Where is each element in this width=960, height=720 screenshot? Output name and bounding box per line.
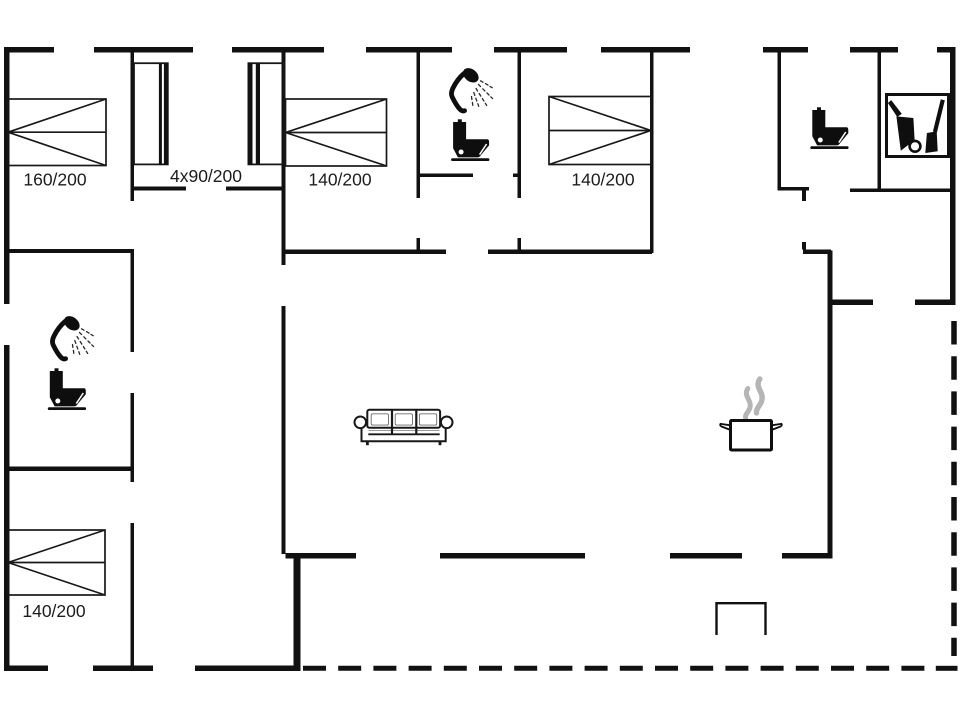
svg-text:160/200: 160/200 [23, 169, 87, 189]
svg-text:4x90/200: 4x90/200 [170, 166, 242, 186]
svg-text:140/200: 140/200 [571, 169, 635, 189]
svg-text:140/200: 140/200 [308, 169, 372, 189]
svg-text:140/200: 140/200 [22, 601, 86, 621]
